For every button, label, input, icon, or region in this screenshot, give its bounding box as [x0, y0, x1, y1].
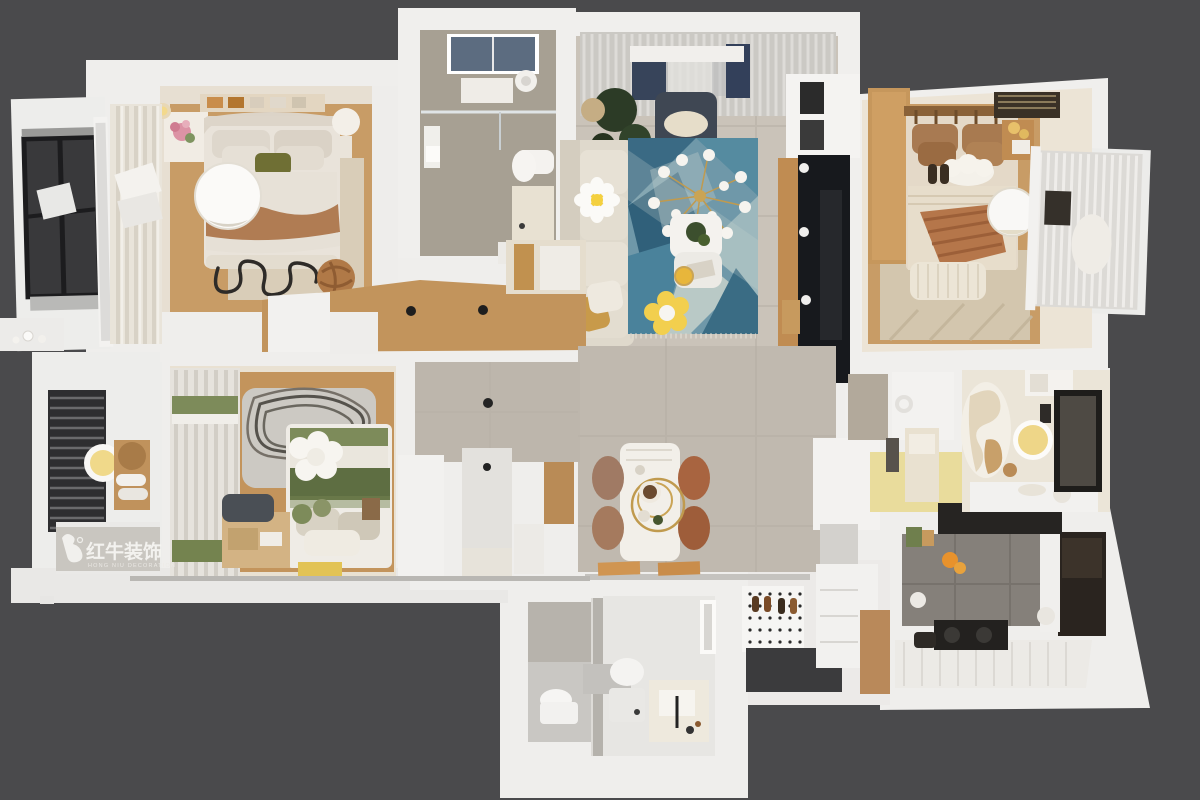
svg-text:HONG NIU DECORATION: HONG NIU DECORATION — [88, 563, 176, 569]
svg-text:红牛装饰: 红牛装饰 — [86, 540, 162, 563]
